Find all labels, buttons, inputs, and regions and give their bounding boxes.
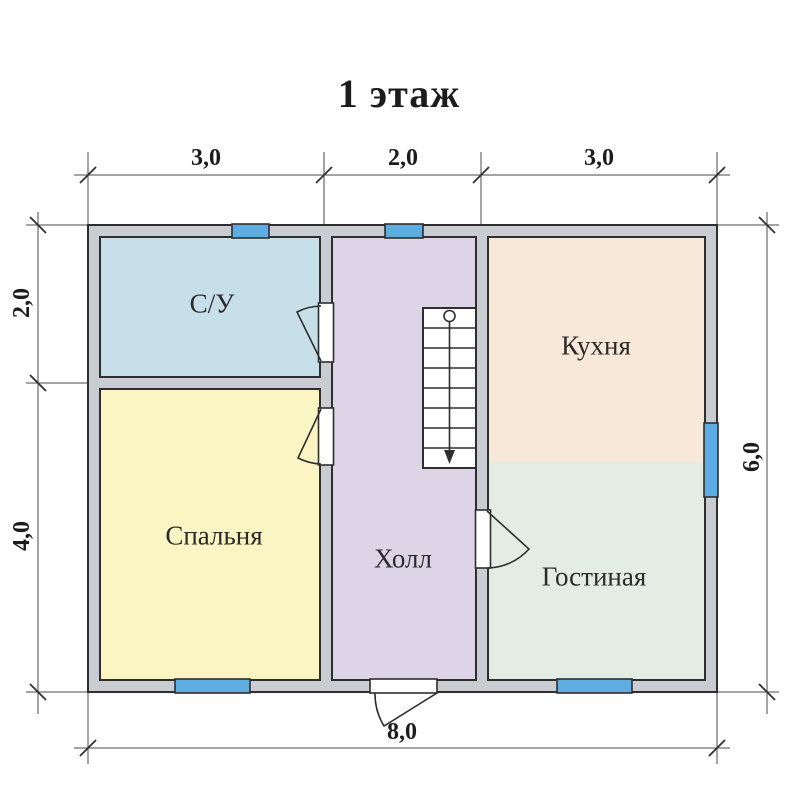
dim-label-right: 6,0 bbox=[740, 442, 764, 472]
room-label-bathroom: С/У bbox=[190, 291, 235, 318]
dim-label-top-right: 3,0 bbox=[584, 146, 614, 170]
window-top-bathroom bbox=[232, 224, 269, 238]
door-opening-livingroom bbox=[476, 510, 491, 568]
door-opening-entrance bbox=[370, 679, 437, 693]
door-opening-bedroom bbox=[319, 408, 334, 465]
stair-start-circle bbox=[444, 311, 455, 322]
dim-label-top-left: 3,0 bbox=[191, 146, 221, 170]
dim-label-left-lower: 4,0 bbox=[10, 521, 34, 551]
room-label-hall: Холл bbox=[374, 546, 432, 573]
room-label-bedroom: Спальня bbox=[165, 523, 262, 550]
staircase bbox=[423, 308, 476, 468]
window-right-kitchen bbox=[704, 423, 718, 497]
room-label-kitchen: Кухня bbox=[561, 333, 631, 360]
window-bottom-bedroom bbox=[175, 679, 250, 693]
floor-plan-drawing bbox=[0, 0, 800, 800]
door-opening-bathroom bbox=[319, 303, 334, 362]
window-top-hall bbox=[385, 224, 423, 238]
dim-label-top-middle: 2,0 bbox=[388, 146, 418, 170]
floor-plan-page: 1 этаж 3,0 2,0 3,0 2,0 4,0 6,0 8,0 С/У С… bbox=[0, 0, 800, 800]
page-title: 1 этаж bbox=[338, 74, 460, 114]
dim-label-left-upper: 2,0 bbox=[10, 288, 34, 318]
dim-label-bottom: 8,0 bbox=[387, 720, 417, 744]
window-bottom-livingroom bbox=[557, 679, 632, 693]
room-label-livingroom: Гостиная bbox=[542, 564, 647, 591]
